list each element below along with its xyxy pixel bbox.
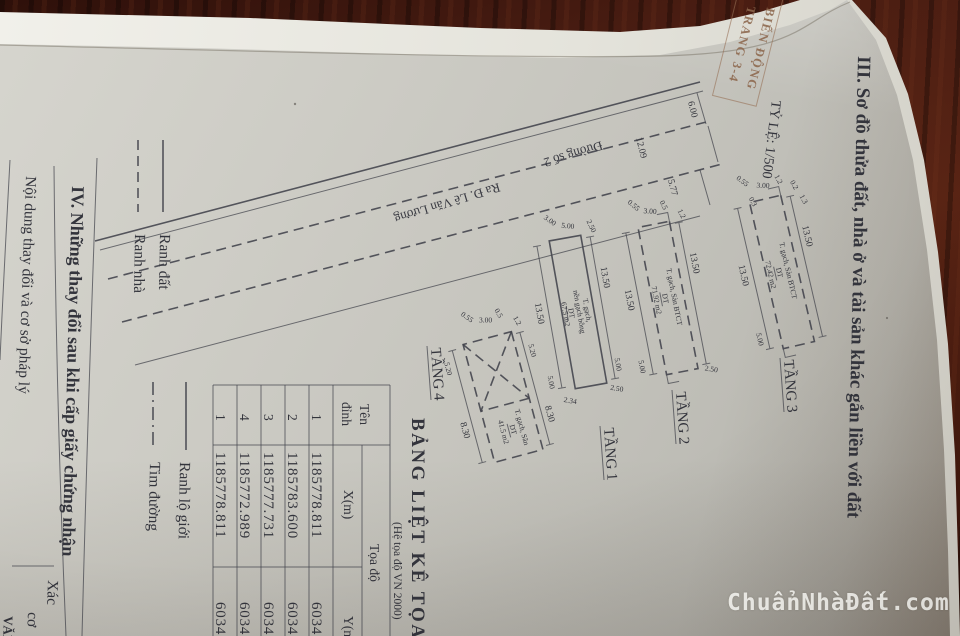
document-page	[0, 0, 960, 636]
document-photo: III. Sơ đồ thửa đất, nhà ở và tài sản kh…	[0, 0, 960, 636]
watermark: ChuẩnNhàĐất.com	[727, 590, 950, 616]
